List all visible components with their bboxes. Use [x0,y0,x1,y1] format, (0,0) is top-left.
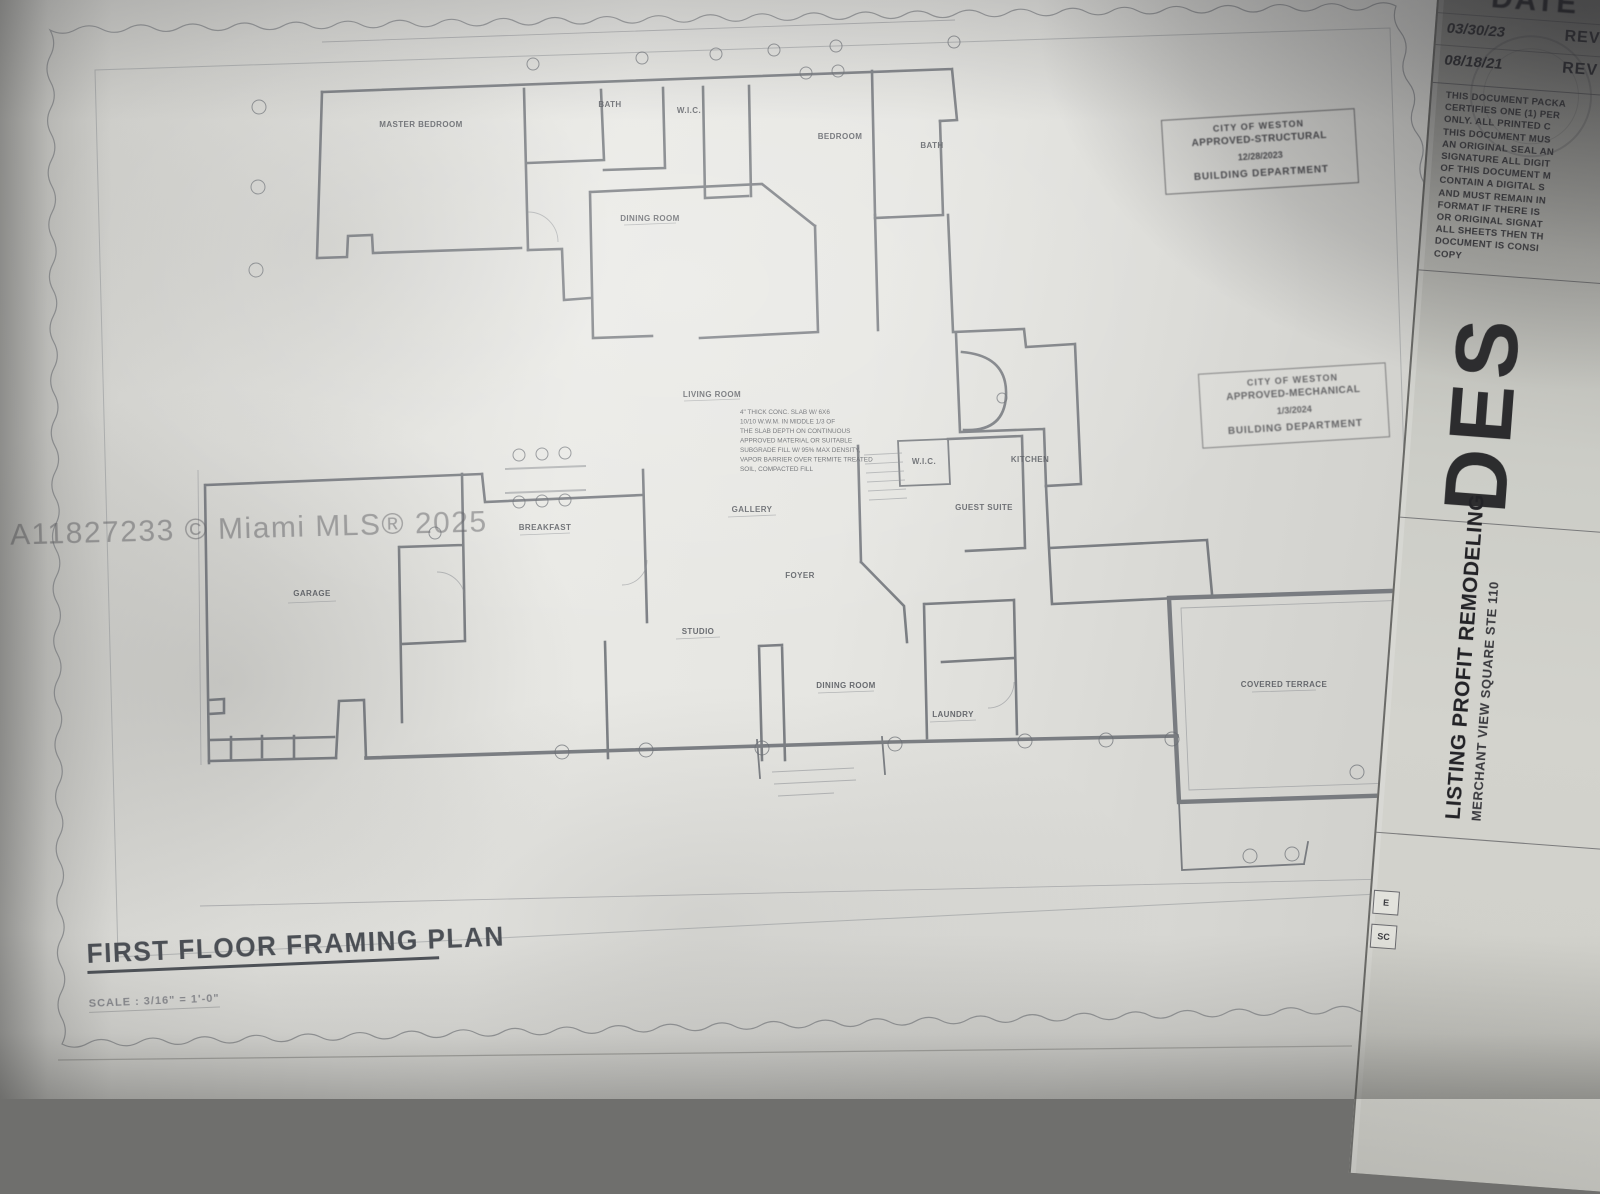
room-label: FOYER [785,571,815,580]
approval-stamp-structural: CITY OF WESTON APPROVED-STRUCTURAL 12/28… [1161,108,1359,195]
stamp-dept: BUILDING DEPARTMENT [1210,418,1380,438]
room-label: KITCHEN [1011,455,1049,464]
company-name-vertical: LISTING PROFIT REMODELING MERCHANT VIEW … [1442,488,1509,822]
room-label: W.I.C. [912,457,936,466]
room-label: GARAGE [293,589,331,598]
revision-label: REV [1564,28,1600,49]
room-label: STUDIO [682,627,715,636]
room-label: LAUNDRY [932,710,974,719]
room-label: BATH [920,141,943,150]
note-line: 4" THICK CONC. SLAB W/ 6X6 [740,409,830,416]
note-line: 10/10 W.W.M. IN MIDDLE 1/3 OF [740,419,835,426]
room-label: DINING ROOM [816,681,876,690]
room-label: GALLERY [732,505,773,514]
room-label: BREAKFAST [519,523,572,532]
stamp-date: 1/3/2024 [1209,401,1379,420]
blueprint-photo: MASTER BEDROOM BATH W.I.C. BEDROOM BATH … [0,0,1600,1099]
room-label: W.I.C. [677,106,701,115]
paper-edge-line [58,1046,1352,1060]
approval-stamp-mechanical: CITY OF WESTON APPROVED-MECHANICAL 1/3/2… [1198,362,1390,448]
room-label: DINING ROOM [620,214,680,223]
room-label: LIVING ROOM [683,390,741,399]
revision-date: 03/30/23 [1445,20,1507,41]
note-line: APPROVED MATERIAL OR SUITABLE [740,438,852,445]
titleblock-cell-e: E [1372,890,1400,916]
room-label: BEDROOM [818,132,863,141]
slab-note: 4" THICK CONC. SLAB W/ 6X6 10/10 W.W.M. … [740,409,873,473]
strip-divider [1376,832,1600,854]
stamp-dept: BUILDING DEPARTMENT [1173,164,1349,185]
note-line: VAPOR BARRIER OVER TERMITE TREATED [740,457,873,464]
room-label: COVERED TERRACE [1241,680,1328,689]
titleblock-cell-sc: SC [1370,924,1398,950]
note-line: SOIL, COMPACTED FILL [740,466,813,473]
room-label: BATH [598,100,621,109]
note-line: SUBGRADE FILL W/ 95% MAX DENSITY, [740,447,861,454]
note-line: THE SLAB DEPTH ON CONTINUOUS [740,428,850,435]
document-notice: THIS DOCUMENT PACKA CERTIFIES ONE (1) PE… [1433,90,1600,281]
room-label: MASTER BEDROOM [379,120,462,129]
room-label: GUEST SUITE [955,503,1013,512]
company-logo: DES [1431,270,1537,516]
